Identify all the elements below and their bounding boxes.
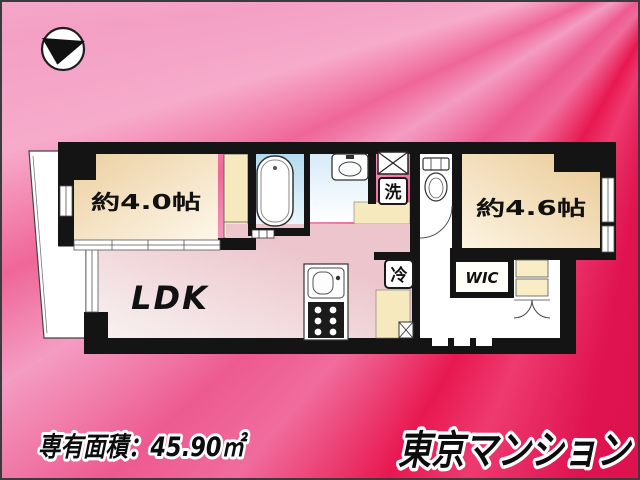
sink-icon — [308, 268, 344, 298]
wic-room: WIC — [456, 262, 508, 292]
entrance-step-notches — [432, 334, 492, 346]
kitchen-counter — [304, 264, 348, 340]
exclusive-area-text: 専有面積：45.90㎡ — [38, 431, 248, 463]
room-4-0-label: 約4.0帖 — [91, 190, 201, 214]
stove-icon — [308, 302, 344, 338]
washroom-step — [354, 202, 410, 224]
washing-machine-icon — [378, 152, 408, 174]
ldk-label: LDK — [131, 279, 209, 317]
laundry-label: 洗 — [379, 178, 407, 204]
wic-label: WIC — [465, 269, 498, 287]
washbasin-icon — [332, 154, 368, 180]
floorplan-image: 洗 冷 — [2, 2, 640, 480]
room-4-6-label: 約4.6帖 — [476, 196, 586, 220]
north-arrow-icon — [42, 28, 84, 70]
toilet-icon — [423, 158, 449, 201]
laundry-label-text: 洗 — [385, 182, 402, 203]
fridge-label-text: 冷 — [391, 265, 408, 286]
floorplan-advert: 洗 冷 — [0, 0, 640, 480]
brand-logo: 東京マンション — [398, 428, 632, 474]
